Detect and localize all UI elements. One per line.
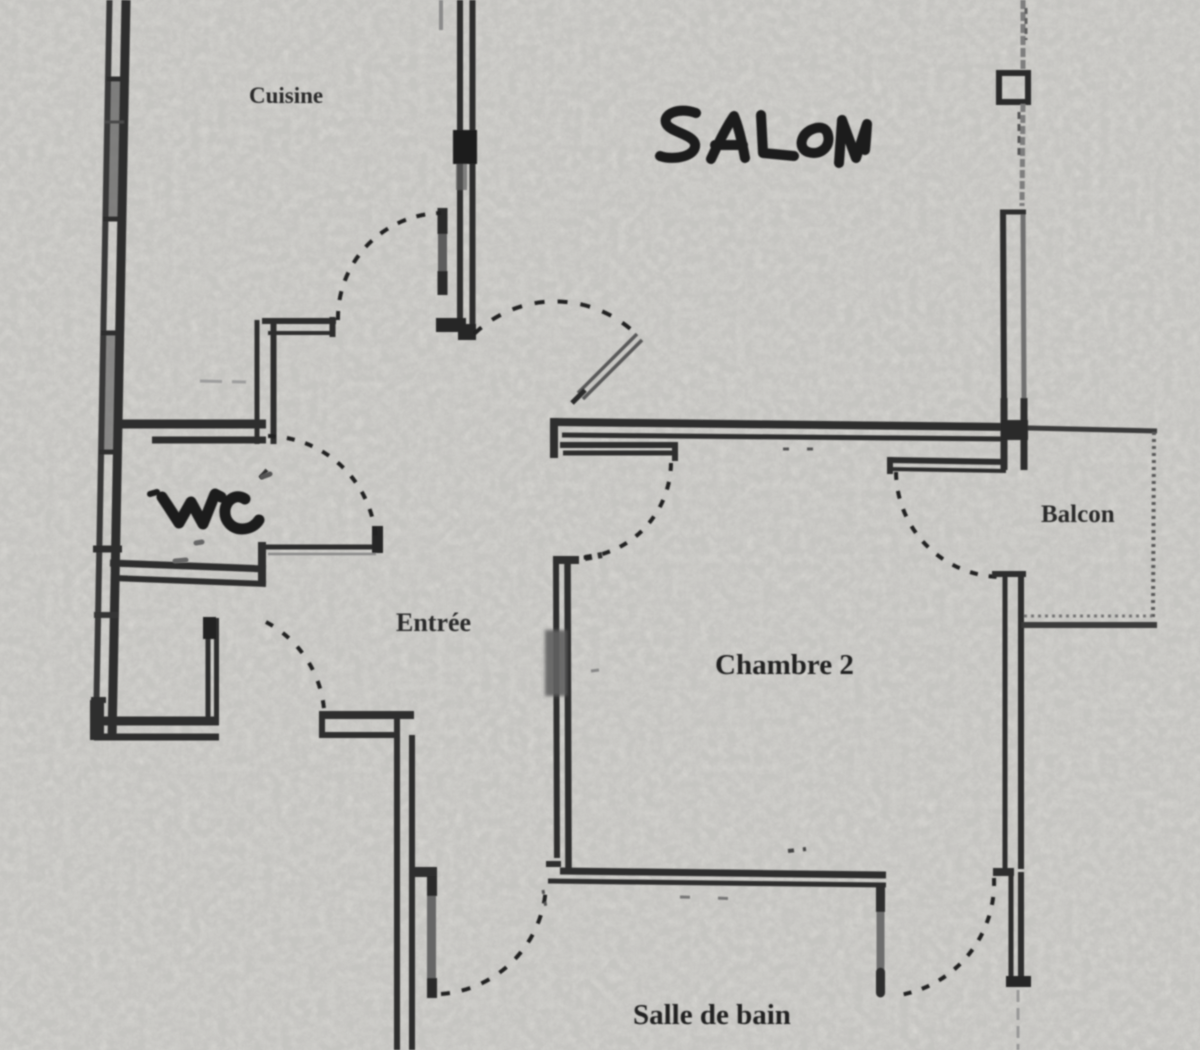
- svg-text:Balcon: Balcon: [1041, 501, 1115, 528]
- svg-text:Cuisine: Cuisine: [249, 83, 323, 108]
- svg-text:Chambre 2: Chambre 2: [715, 649, 854, 681]
- svg-text:Salle de bain: Salle de bain: [633, 999, 791, 1031]
- svg-text:Entrée: Entrée: [396, 608, 471, 637]
